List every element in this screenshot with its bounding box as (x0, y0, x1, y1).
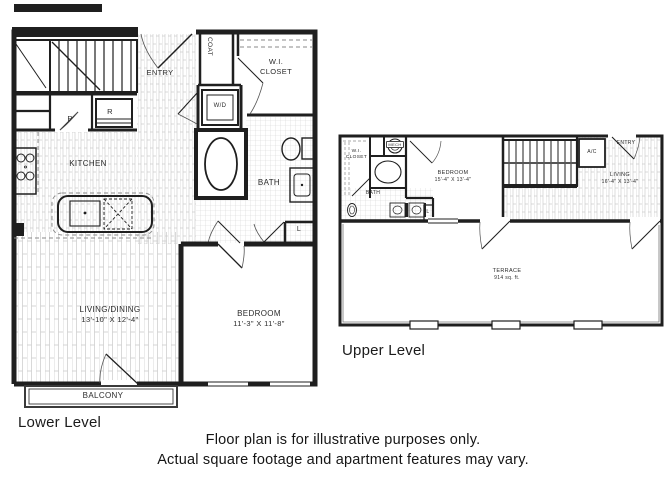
upper-level-caption: Upper Level (342, 341, 462, 360)
floorplan-page: ENTRY COAT W.I. CLOSET W/D P R KITCHEN B… (0, 0, 670, 484)
room-label-bedroom: BEDROOM 11'-3" X 11'-8" (204, 309, 314, 329)
room-label-bath: BATH (244, 178, 294, 188)
room-label-entry: ENTRY (130, 68, 190, 78)
lower-floor-hatch (16, 34, 314, 382)
room-label-upper-bedroom: BEDROOM 15'-4" X 13'-4" (413, 170, 493, 183)
room-label-living-dining: LIVING/DINING 13'-10" X 12'-4" (55, 305, 165, 325)
lower-top-black-band (12, 27, 138, 37)
lower-level-caption: Lower Level (18, 413, 138, 432)
room-label-upper-linen: L (422, 209, 434, 215)
bathtub-lower (196, 130, 246, 198)
room-label-upper-wi-closet: W.I. CLOSET (340, 149, 373, 161)
room-label-wi-closet: W.I. CLOSET (245, 57, 307, 76)
room-label-kitchen: KITCHEN (53, 159, 123, 169)
lower-top-bar (14, 4, 102, 12)
disclaimer-line-1: Floor plan is for illustrative purposes … (13, 431, 670, 451)
floorplan-drawing (0, 0, 670, 484)
stairs-lower (14, 40, 137, 92)
upper-bedroom-door (410, 141, 432, 163)
room-label-mech: MECH (386, 142, 404, 147)
room-label-wd: W/D (202, 103, 238, 111)
room-label-refrigerator: R (98, 107, 122, 117)
room-label-upper-bath: BATH (357, 190, 389, 196)
room-label-coat: COAT (201, 37, 213, 83)
room-label-balcony: BALCONY (63, 391, 143, 401)
room-label-ac: A/C (578, 149, 606, 155)
upper-level-plan (340, 132, 662, 329)
bathtub-upper (370, 156, 406, 188)
room-label-pantry: P (58, 114, 82, 124)
bedroom-door (218, 244, 242, 268)
disclaimer-line-2: Actual square footage and apartment feat… (13, 451, 670, 471)
room-label-linen: L (291, 226, 307, 235)
disclaimer-text: Floor plan is for illustrative purposes … (13, 431, 670, 470)
room-label-terrace: TERRACE 914 sq. ft. (467, 268, 547, 281)
room-label-upper-entry: ENTRY (606, 140, 646, 146)
room-label-upper-living: LIVING 16'-4" X 13'-4" (582, 172, 658, 185)
